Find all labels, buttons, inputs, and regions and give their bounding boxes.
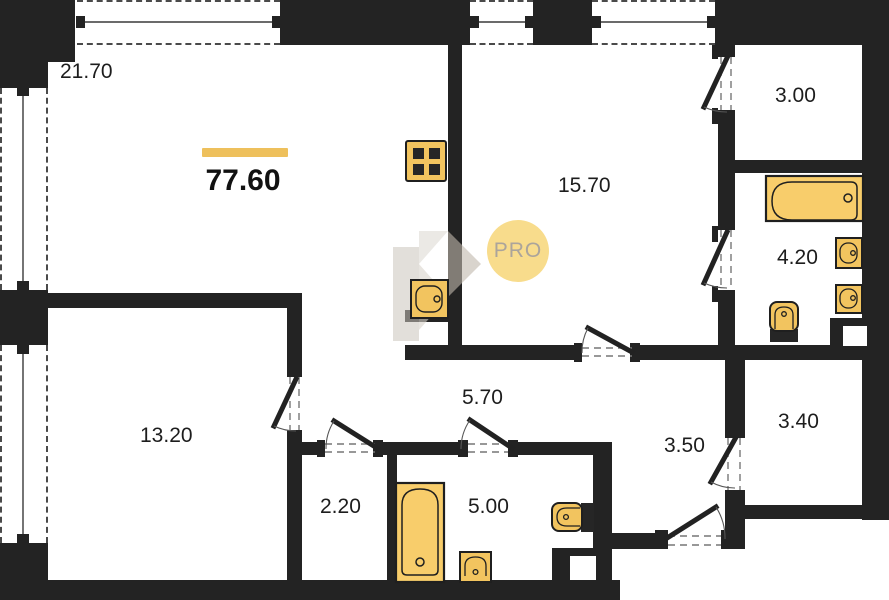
door-bathroom2	[470, 420, 512, 448]
door-openings	[290, 57, 740, 545]
wall-sink-icon	[836, 238, 862, 268]
bathtub-vertical-icon	[396, 483, 444, 582]
room-label-living: 21.70	[60, 60, 113, 84]
window-glass	[23, 22, 711, 538]
door-bathroom	[704, 232, 727, 283]
door-storage	[711, 439, 735, 482]
door-leaves	[274, 58, 735, 538]
total-area-accent-bar	[202, 148, 288, 157]
plan-overlay	[0, 0, 889, 600]
room-label-storage: 3.40	[778, 410, 819, 434]
sink-icon	[460, 552, 491, 582]
pro-watermark-badge: PRO	[487, 220, 549, 282]
bathtub-icon	[766, 176, 863, 221]
room-label-bathroom: 4.20	[777, 246, 818, 270]
door-dressing	[704, 58, 727, 107]
window-endcaps	[17, 16, 716, 543]
door-bedroom2	[274, 379, 296, 426]
room-label-wardrobe: 2.20	[320, 495, 361, 519]
room-label-bathroom2: 5.00	[468, 495, 509, 519]
toilet-icon	[552, 503, 594, 532]
room-label-entryhall: 3.50	[664, 434, 705, 458]
room-label-dressing: 3.00	[775, 84, 816, 108]
kitchen-sink-icon	[411, 280, 448, 318]
room-label-hallway: 5.70	[462, 386, 503, 410]
pro-watermark-text: PRO	[494, 239, 543, 263]
stove-icon	[406, 141, 446, 181]
total-area-label: 77.60	[195, 164, 291, 198]
room-label-bedroom: 15.70	[558, 174, 611, 198]
door-entrance	[667, 507, 716, 538]
room-label-bedroom2: 13.20	[140, 424, 193, 448]
wall-sink-icon	[836, 285, 862, 313]
door-arcs	[274, 107, 735, 539]
toilet-icon	[770, 302, 798, 342]
floor-plan: 77.60 21.70 15.70 3.00 4.20 13.20 5.70 2…	[0, 0, 889, 600]
